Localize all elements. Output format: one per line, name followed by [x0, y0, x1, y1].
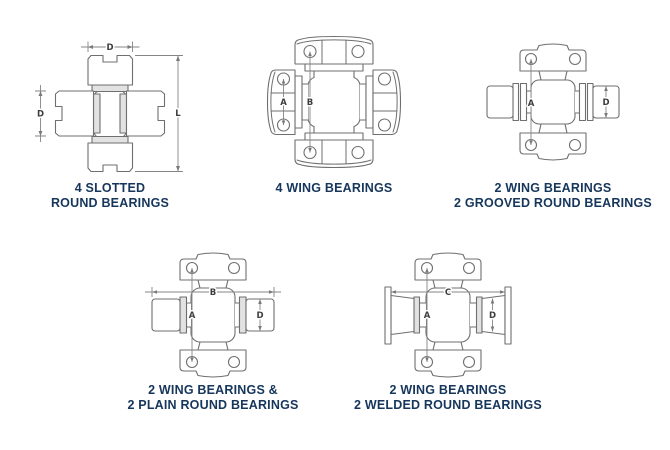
caption-two-wing-two-welded-round: 2 WING BEARINGS 2 WELDED ROUND BEARINGS	[338, 383, 558, 413]
dim-label-a: A	[528, 99, 535, 109]
dim-label-c: C	[445, 288, 451, 298]
dim-label-b: B	[210, 288, 216, 298]
dimension-overall-width: B	[145, 287, 281, 298]
diagram-four-slotted-round-bearings: D D L	[35, 42, 183, 172]
bearing-types-diagram-sheet: D D L	[0, 0, 670, 450]
caption-two-wing-two-grooved-round: 2 WING BEARINGS 2 GROOVED ROUND BEARINGS	[443, 181, 663, 211]
dimension-wing-span: A	[189, 268, 196, 362]
caption-line: 4 WING BEARINGS	[234, 181, 434, 196]
dimension-cup-width-top: D	[81, 42, 140, 54]
grooved-round-bearing-right	[580, 84, 620, 121]
welded-round-bearing-left	[385, 287, 420, 344]
dimension-overall-width: C	[391, 288, 505, 298]
caption-line: 4 SLOTTED	[10, 181, 210, 196]
dimension-wing-span: A	[528, 59, 535, 145]
dim-label-d-left: D	[37, 110, 44, 120]
diagram-two-wing-two-grooved-round: A D	[487, 44, 619, 160]
dim-label-a: A	[280, 98, 287, 108]
caption-line: 2 GROOVED ROUND BEARINGS	[443, 196, 663, 211]
caption-four-slotted-round-bearings: 4 SLOTTED ROUND BEARINGS	[10, 181, 210, 211]
diagram-two-wing-two-plain-round: B A D	[145, 253, 281, 377]
caption-two-wing-two-plain-round: 2 WING BEARINGS & 2 PLAIN ROUND BEARINGS	[103, 383, 323, 413]
diagram-four-wing-bearings: A B	[268, 37, 401, 168]
caption-four-wing-bearings: 4 WING BEARINGS	[234, 181, 434, 196]
dim-label-d: D	[256, 311, 263, 321]
diagram-two-wing-two-welded-round: C A D	[385, 253, 511, 377]
dim-label-b: B	[307, 98, 313, 108]
caption-line: 2 WING BEARINGS	[338, 383, 558, 398]
caption-line: ROUND BEARINGS	[10, 196, 210, 211]
caption-line: 2 PLAIN ROUND BEARINGS	[103, 398, 323, 413]
cross-body	[527, 71, 580, 133]
grooved-round-bearing-left	[487, 84, 527, 121]
dim-label-d: D	[489, 311, 496, 321]
caption-line: 2 WING BEARINGS	[443, 181, 663, 196]
dim-label-d: D	[602, 98, 609, 108]
dimension-wing-span: A	[424, 268, 431, 362]
dimension-cup-height-left: D	[35, 85, 46, 142]
plain-round-bearing-left	[152, 297, 187, 333]
universal-joint-diagrams: D D L	[0, 0, 670, 450]
dim-label-d-top: D	[106, 43, 113, 53]
caption-line: 2 WING BEARINGS &	[103, 383, 323, 398]
caption-line: 2 WELDED ROUND BEARINGS	[338, 398, 558, 413]
dim-label-a: A	[189, 311, 196, 321]
dim-label-l: L	[175, 109, 181, 119]
dim-label-a: A	[424, 311, 431, 321]
